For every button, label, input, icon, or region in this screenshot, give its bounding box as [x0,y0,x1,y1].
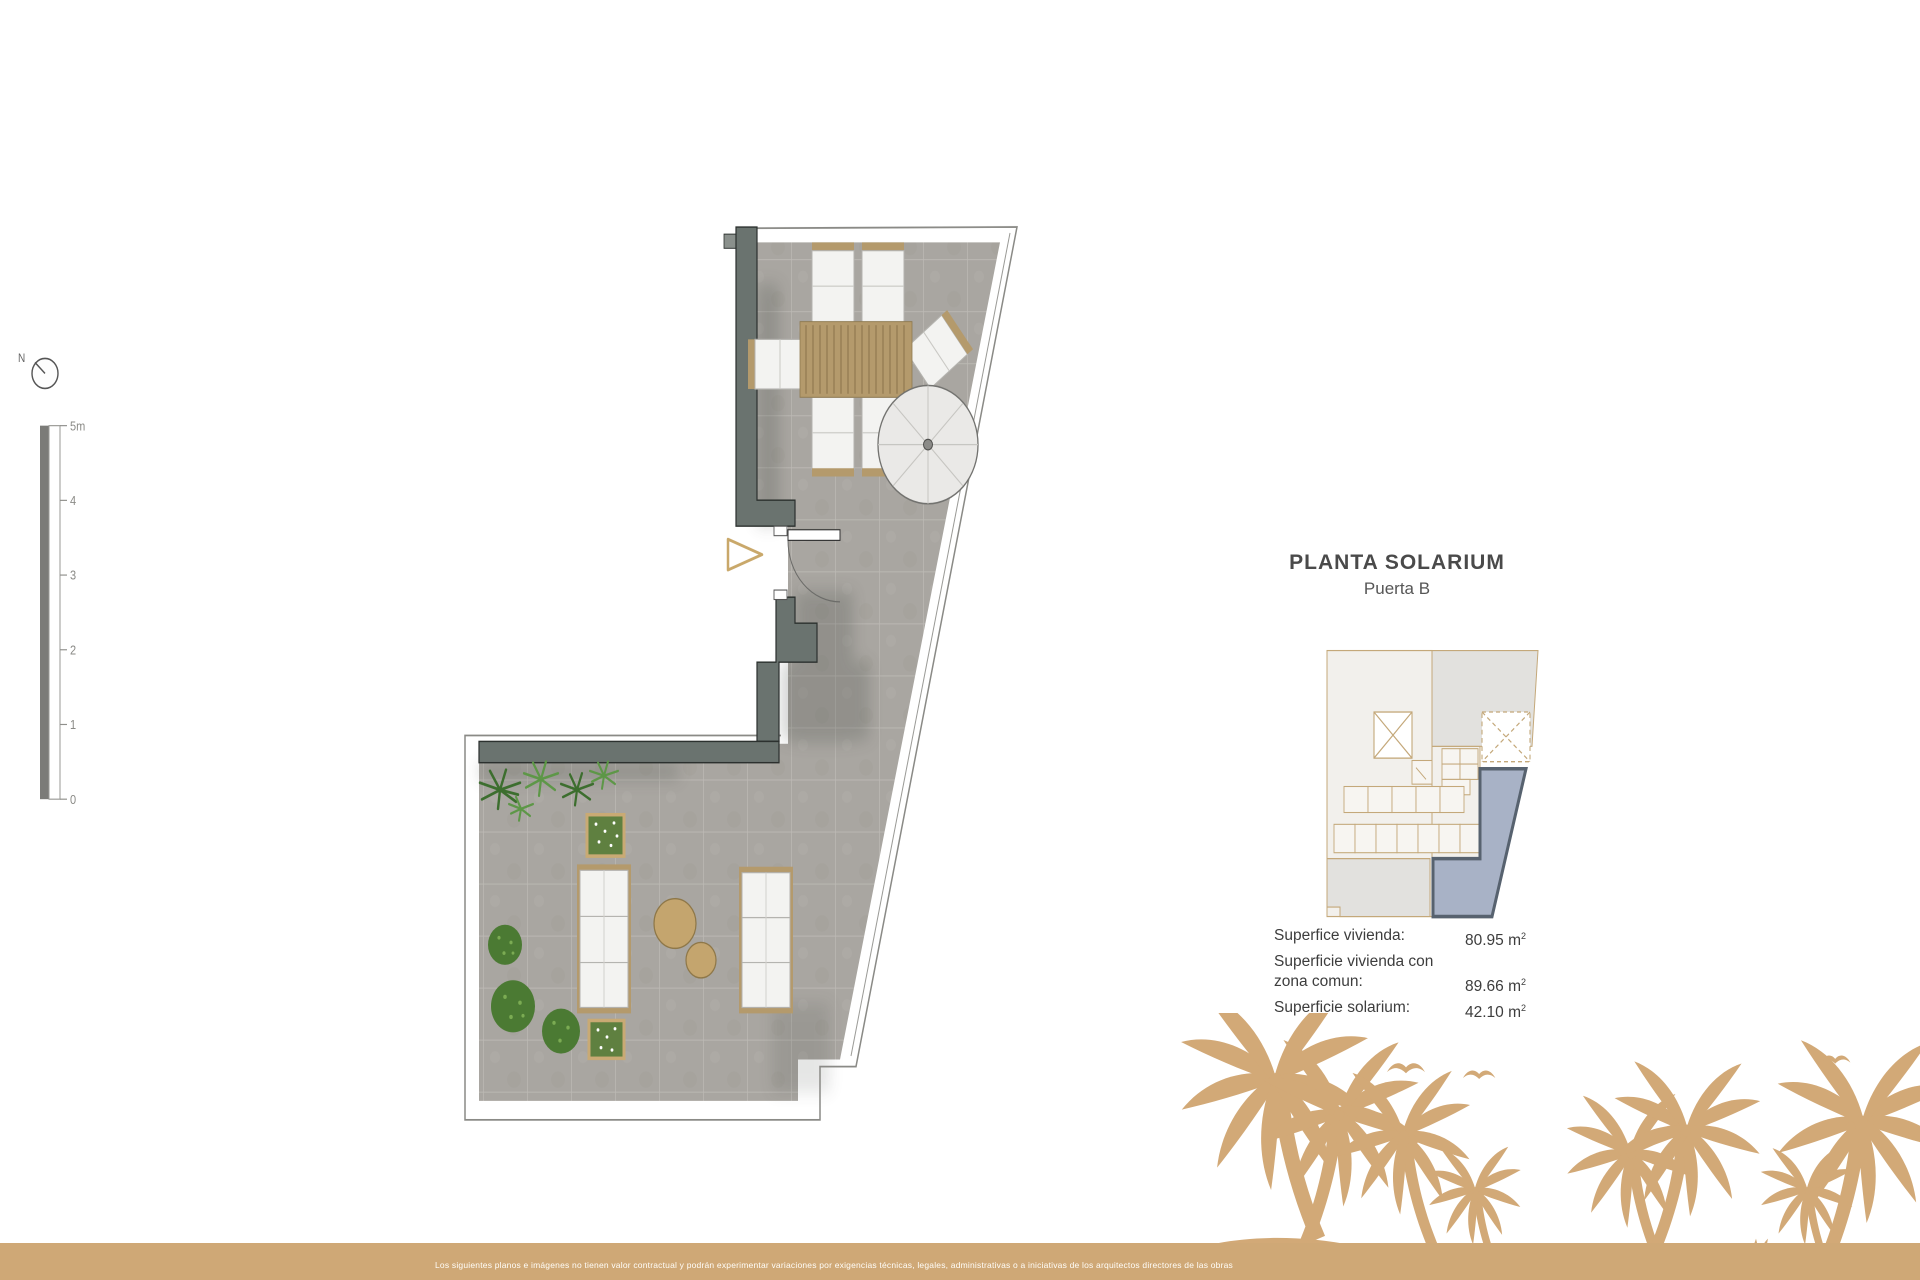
parasol [878,385,978,503]
dining-chair [748,339,805,389]
key-plan-shaft [1482,712,1530,762]
floor-plan [440,201,1040,1147]
dining-chair [862,242,904,322]
disclaimer-text: Los siguientes planos e imágenes no tien… [0,1260,1668,1270]
bush [542,1009,580,1054]
door-leaf [788,530,840,541]
area-value: 80.95 m2 [1465,926,1526,952]
area-row: Superfice vivienda: 80.95 m2 [1274,926,1526,952]
area-label: Superficie vivienda con [1274,952,1433,973]
outdoor-sofa [739,867,793,1014]
palm-silhouettes [1175,1013,1920,1280]
disclaimer-bar: Los siguientes planos e imágenes no tien… [0,1243,1920,1280]
key-plan-shaft [1374,712,1412,758]
scale-bar: 5m 4 3 2 1 0 [36,421,100,805]
area-row: Superficie vivienda con [1274,952,1526,973]
planter-box [587,815,624,856]
bush [488,925,522,965]
area-value: 89.66 m2 [1465,972,1526,998]
palm-tree [1775,1033,1920,1270]
page-title: PLANTA SOLARIUM [1277,551,1517,575]
dining-table [800,322,912,398]
surface-areas: Superfice vivienda: 80.95 m2 Superficie … [1274,926,1526,1024]
door-jamb-top [774,526,787,535]
key-plan-neighbor-block [1327,859,1430,917]
scale-label-3: 3 [70,568,76,583]
palm-beach-illustration [1175,1013,1920,1280]
round-coffee-table [686,942,716,977]
dining-chair [812,242,854,322]
scale-ticks [60,426,67,800]
scale-label-4: 4 [70,493,76,508]
north-label: N [18,352,25,365]
area-label: Superfice vivienda: [1274,926,1405,952]
dining-chair [812,397,854,476]
wall-cap [724,234,736,248]
bird-icon [1387,1063,1425,1073]
round-coffee-table [654,899,696,949]
area-label: zona comun: [1274,972,1363,998]
scale-bar-outline [49,426,60,800]
page-subtitle: Puerta B [1277,579,1517,599]
scale-label-1: 1 [70,717,76,732]
key-plan [1292,621,1542,926]
scale-label-0: 0 [70,792,76,805]
bird-icon [1463,1070,1495,1079]
scale-label-5m: 5m [70,421,85,434]
scale-label-2: 2 [70,643,76,658]
door-jamb-bottom [774,590,787,599]
wall-lower-band [479,741,779,762]
scale-bar-fill [40,426,49,800]
north-compass-icon: N [14,348,70,400]
scale-labels: 5m 4 3 2 1 0 [70,421,85,805]
planter-box [589,1020,624,1058]
bush [491,980,535,1032]
outdoor-sofa [577,864,631,1013]
entry-arrow-icon [728,539,762,570]
key-plan-building [1327,651,1538,917]
area-row: zona comun: 89.66 m2 [1274,972,1526,998]
